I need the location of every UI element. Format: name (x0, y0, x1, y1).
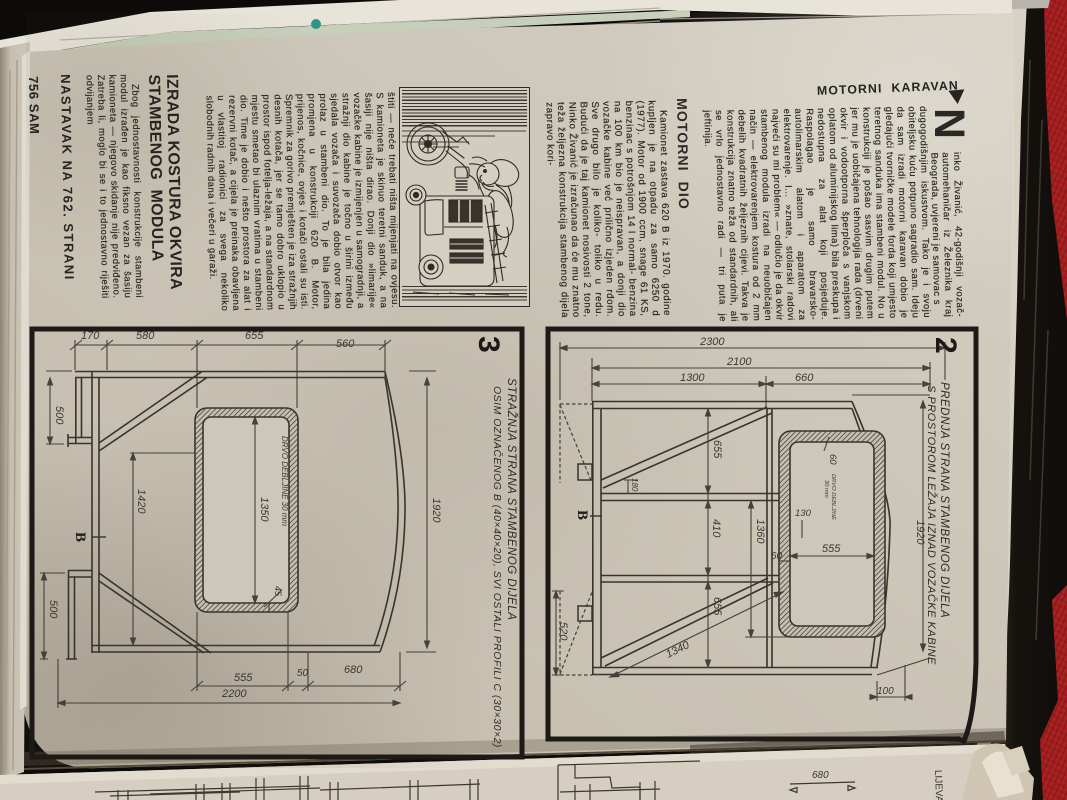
svg-text:2200: 2200 (221, 688, 247, 700)
svg-text:60: 60 (827, 454, 838, 465)
svg-text:180: 180 (630, 478, 639, 492)
svg-text:3: 3 (472, 336, 505, 353)
svg-text:50: 50 (297, 668, 309, 679)
svg-text:580: 580 (136, 330, 155, 342)
svg-text:2: 2 (929, 337, 962, 354)
svg-text:500: 500 (53, 406, 65, 425)
svg-text:655: 655 (711, 597, 723, 616)
svg-text:DRVO DEBLJINE 30 mm: DRVO DEBLJINE 30 mm (280, 436, 289, 526)
svg-text:660: 660 (795, 372, 814, 384)
svg-text:680: 680 (812, 770, 829, 781)
svg-text:45: 45 (273, 586, 283, 597)
svg-text:1420: 1420 (135, 489, 147, 514)
svg-text:2300: 2300 (699, 336, 725, 348)
svg-text:DRVO DEBLJINE: DRVO DEBLJINE (830, 474, 836, 520)
svg-text:2100: 2100 (726, 356, 752, 368)
svg-text:555: 555 (234, 672, 253, 684)
svg-text:680: 680 (344, 664, 363, 676)
svg-text:OSIM OZNAČENOG B (40×40×20), S: OSIM OZNAČENOG B (40×40×20), SVI OSTALI … (491, 386, 504, 748)
svg-text:555: 555 (822, 543, 841, 555)
svg-text:STRAŽNJA STRANA STAMBENOG DIJE: STRAŽNJA STRANA STAMBENOG DIJELA (505, 378, 518, 620)
svg-text:1300: 1300 (680, 372, 705, 384)
svg-text:S PROSTOROM LEŽAJA IZNAD VOZAČ: S PROSTOROM LEŽAJA IZNAD VOZAČKE KABINE (925, 385, 938, 665)
svg-text:1350: 1350 (258, 497, 270, 522)
svg-text:60: 60 (771, 551, 783, 562)
svg-text:500: 500 (47, 600, 59, 619)
svg-text:100: 100 (877, 686, 894, 697)
svg-text:170: 170 (81, 330, 100, 342)
svg-text:1360: 1360 (754, 519, 766, 544)
svg-text:B: B (72, 532, 88, 542)
svg-text:410: 410 (710, 519, 722, 538)
svg-text:LIJEVA: LIJEVA (932, 770, 944, 800)
svg-text:PREDNJA STRANA STAMBENOG DIJEL: PREDNJA STRANA STAMBENOG DIJELA (938, 382, 950, 618)
svg-text:1920: 1920 (914, 520, 926, 545)
svg-text:B: B (574, 510, 590, 520)
svg-text:655: 655 (711, 440, 723, 459)
svg-text:30 mm: 30 mm (823, 480, 829, 498)
svg-text:1920: 1920 (430, 498, 442, 523)
svg-text:1340: 1340 (664, 639, 692, 661)
svg-text:130: 130 (795, 508, 812, 519)
svg-text:655: 655 (245, 330, 264, 342)
svg-text:520: 520 (557, 622, 569, 641)
svg-text:560: 560 (336, 338, 355, 350)
